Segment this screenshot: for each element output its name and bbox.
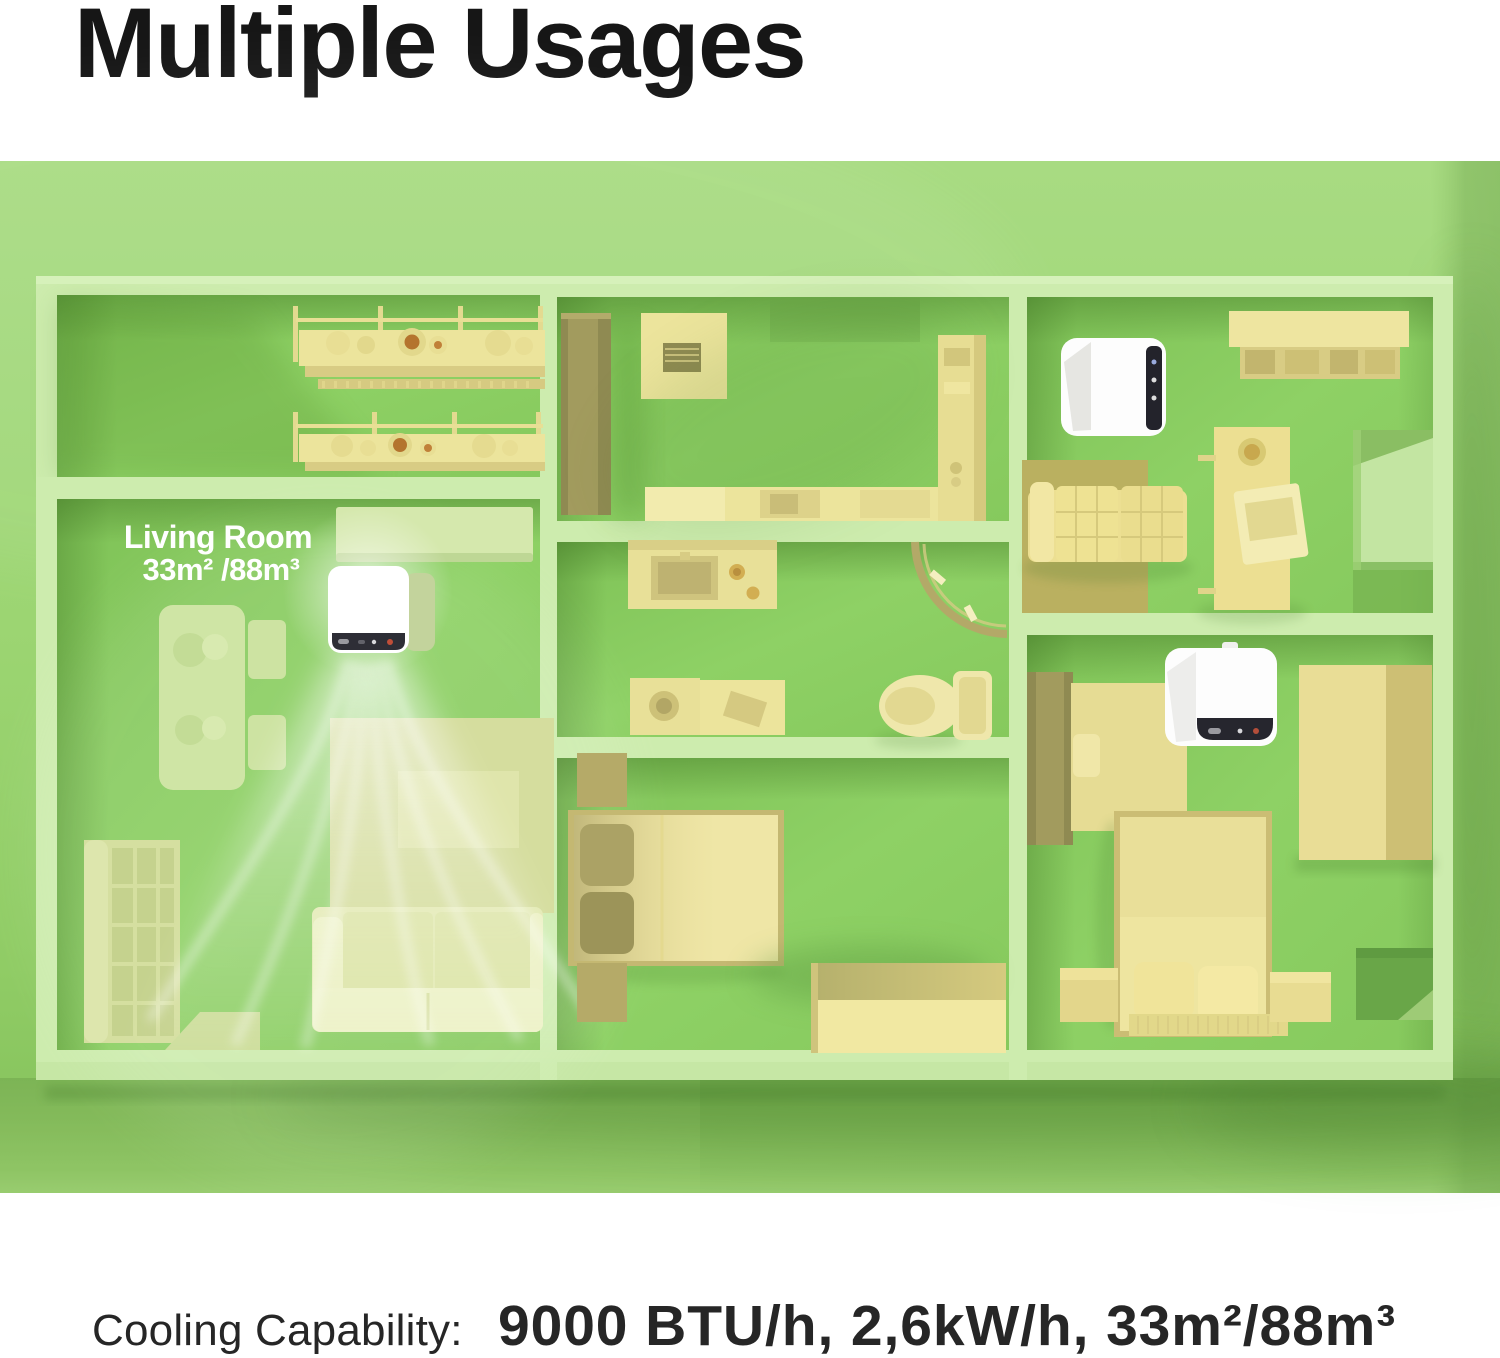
- svg-text:9000 BTU/h, 2,6kW/h, 33m²/88m³: 9000 BTU/h, 2,6kW/h, 33m²/88m³: [498, 1294, 1396, 1358]
- svg-text:Living Room: Living Room: [124, 519, 312, 555]
- svg-text:Cooling Capability:: Cooling Capability:: [92, 1306, 463, 1355]
- svg-text:33m² /88m³: 33m² /88m³: [143, 552, 300, 587]
